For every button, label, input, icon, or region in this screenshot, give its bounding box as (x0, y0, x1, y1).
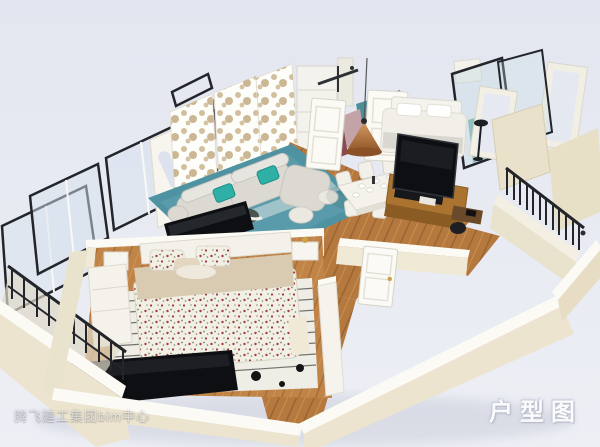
pillow (196, 246, 230, 266)
desk-chair (450, 222, 466, 234)
bolster (176, 265, 216, 279)
entry-door (358, 246, 398, 307)
cream-panel (492, 104, 550, 190)
floorplan-render (0, 0, 600, 447)
ottoman (289, 207, 313, 223)
wall-handle-dot (581, 231, 586, 236)
floorplan-caption: 户型图 (489, 392, 582, 427)
watermark-text: 腾飞建工集团bim中心 (14, 406, 150, 425)
table-lamp (302, 237, 308, 243)
double-bed (134, 232, 302, 370)
floorplan-image: 腾飞建工集团bim中心 户型图 (0, 0, 600, 447)
nightstand (292, 242, 318, 260)
kitchen-column (338, 58, 353, 106)
white-door (306, 98, 346, 171)
